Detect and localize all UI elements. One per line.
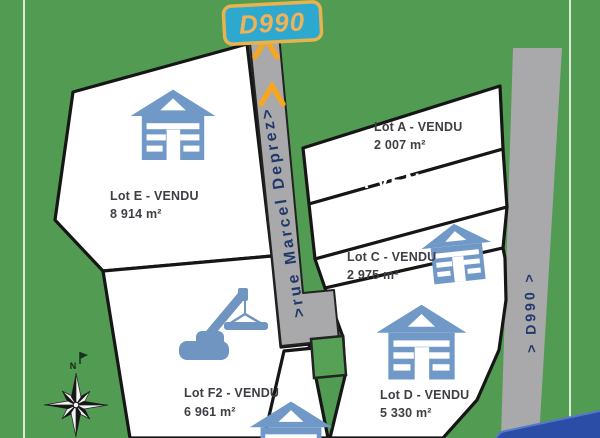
road-end-green-plot (311, 336, 346, 378)
lot-f2-name: Lot F2 - VENDU (184, 386, 279, 400)
lot-d-area: 5 330 m² (380, 406, 432, 420)
for-sale-title[interactable]: À VENDRE (354, 170, 467, 193)
left-boundary-line (23, 0, 25, 438)
site-plan-svg: > D990 > >rue Marcel Deprez> D990 Lot E … (0, 0, 600, 438)
for-sale-area[interactable]: 2 249 m² (370, 194, 450, 215)
lot-e-area: 8 914 m² (110, 207, 162, 221)
compass-north-label: N (70, 361, 77, 371)
lot-f2-area: 6 961 m² (184, 405, 236, 419)
lot-e-name: Lot E - VENDU (110, 189, 199, 203)
top-road-sign-label: D990 (238, 6, 306, 39)
lot-c-name: Lot C - VENDU (347, 250, 436, 264)
site-plan-map: > D990 > >rue Marcel Deprez> D990 Lot E … (0, 0, 600, 438)
road-d990-right-label: > D990 > (521, 271, 540, 353)
lot-d-name: Lot D - VENDU (380, 388, 469, 402)
lot-c-area: 2 975 m² (347, 268, 399, 282)
lot-a-name: Lot A - VENDU (374, 120, 462, 134)
right-boundary-line (569, 0, 571, 438)
top-road-sign: D990 (223, 1, 322, 44)
lot-a-area: 2 007 m² (374, 138, 426, 152)
